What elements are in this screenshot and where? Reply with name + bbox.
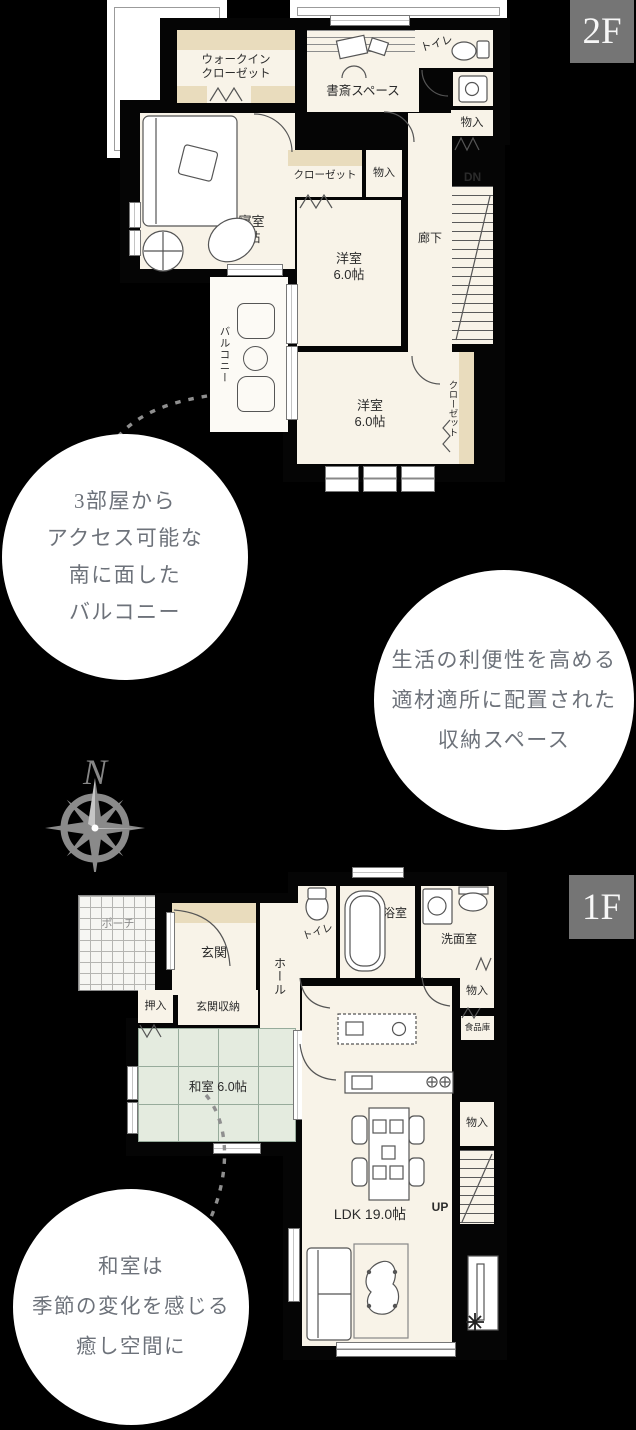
balcony-chair [237,303,275,339]
stairs-up-1f [460,1150,494,1224]
floor-badge-2f: 2F [570,0,634,63]
window [325,466,359,492]
window [286,346,298,420]
closet-shelf [251,86,295,103]
annotation-washitsu: 和室は 季節の変化を感じる 癒し空間に [13,1189,249,1425]
room-label-western-south: 洋室 6.0帖 [330,393,410,435]
room-label-storage-wash: 物入 [460,985,494,998]
window [363,466,397,492]
balcony-chair [237,376,275,412]
room-label-hall: ホール [272,946,288,1006]
stairs-down-2f [452,186,493,344]
annotation-balcony: 3部屋から アクセス可能な 南に面した バルコニー [2,434,248,680]
room-label-oshiire: 押入 [138,1000,173,1013]
window [129,230,141,256]
window [227,264,283,276]
room-label-study-space: 書斎スペース [307,84,419,100]
stairs-dn-label: DN [452,171,493,184]
room-label-storage-mid-2f: 物入 [366,167,402,180]
window [127,1102,138,1134]
window [288,1228,300,1302]
floor-badge-1f: 1F [569,875,634,939]
window [336,1342,456,1357]
room-label-storage-top-2f: 物入 [451,116,493,130]
balcony-table [243,346,268,371]
window [401,466,435,492]
room-label-walk-in-closet: ウォークイン クローゼット [179,50,293,84]
compass-north-letter: N [82,752,109,792]
room-label-entrance: 玄関 [172,945,256,961]
room-label-bathroom: 浴室 [378,906,412,920]
room-bathroom [340,886,415,978]
room-label-western-north: 洋室 6.0帖 [297,246,401,288]
stairs-up-label: UP [426,1200,454,1214]
room-label-entrance-storage: 玄関収納 [178,1001,258,1014]
room-label-master-bedroom: 主寝室 8.0帖 [198,210,292,250]
closet-shelf [177,86,207,103]
window [127,1066,138,1100]
window [129,202,141,228]
window [213,1143,261,1154]
room-label-ldk: LDK 19.0帖 [315,1206,425,1223]
room-ldk [302,986,452,1346]
study-desk-counter [307,30,419,58]
room-label-corridor: 廊下 [408,231,452,245]
room-label-closet-bedroom: クローゼット [288,169,362,182]
window [352,867,404,878]
compass-rose-icon: N [45,742,145,872]
closet-shelf [459,352,474,464]
room-label-storage-ldk: 物入 [460,1117,494,1130]
entrance-step [172,903,256,923]
window [330,15,410,26]
window [286,284,298,344]
room-label-pantry: 食品庫 [461,1022,494,1033]
room-label-washroom: 洗面室 [434,932,484,946]
room-label-japanese: 和室 6.0帖 [168,1080,268,1095]
floorplan-page: ウォークイン クローゼット 書斎スペース トイレ 物入 主寝室 8.0帖 クロー… [0,0,636,1430]
annotation-storage: 生活の利便性を高める 適材適所に配置された 収納スペース [374,570,634,830]
room-label-porch: ポーチ [88,918,148,932]
room-label-closet-south: クローゼット [445,358,458,458]
entrance-door [166,912,175,970]
closet-shelf [288,150,362,166]
closet-shelf [177,30,295,50]
wash-nook-2f [453,72,493,106]
room-label-balcony: バルコニー [218,320,232,390]
